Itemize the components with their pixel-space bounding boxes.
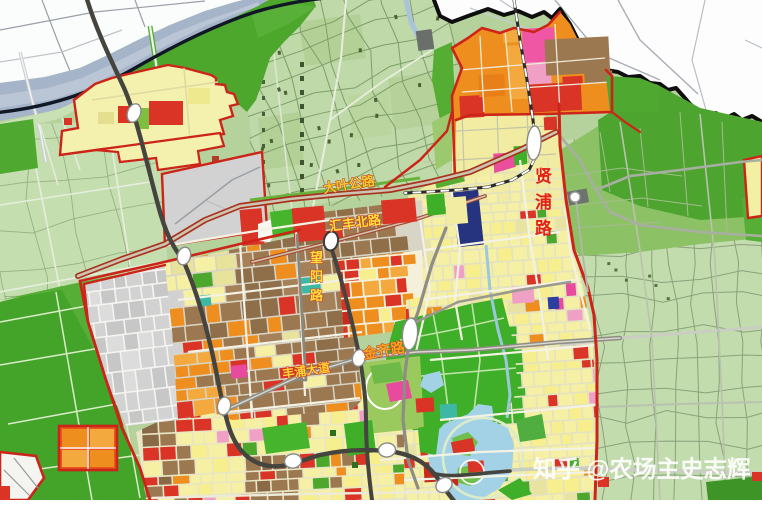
svg-text:贤: 贤 (535, 167, 552, 186)
svg-text:知乎 @农场主史志辉: 知乎 @农场主史志辉 (533, 456, 751, 482)
svg-text:路: 路 (535, 218, 553, 238)
svg-text:阳: 阳 (310, 269, 323, 284)
svg-text:路: 路 (310, 288, 324, 303)
svg-text:望: 望 (310, 250, 323, 265)
svg-text:浦: 浦 (535, 192, 552, 212)
